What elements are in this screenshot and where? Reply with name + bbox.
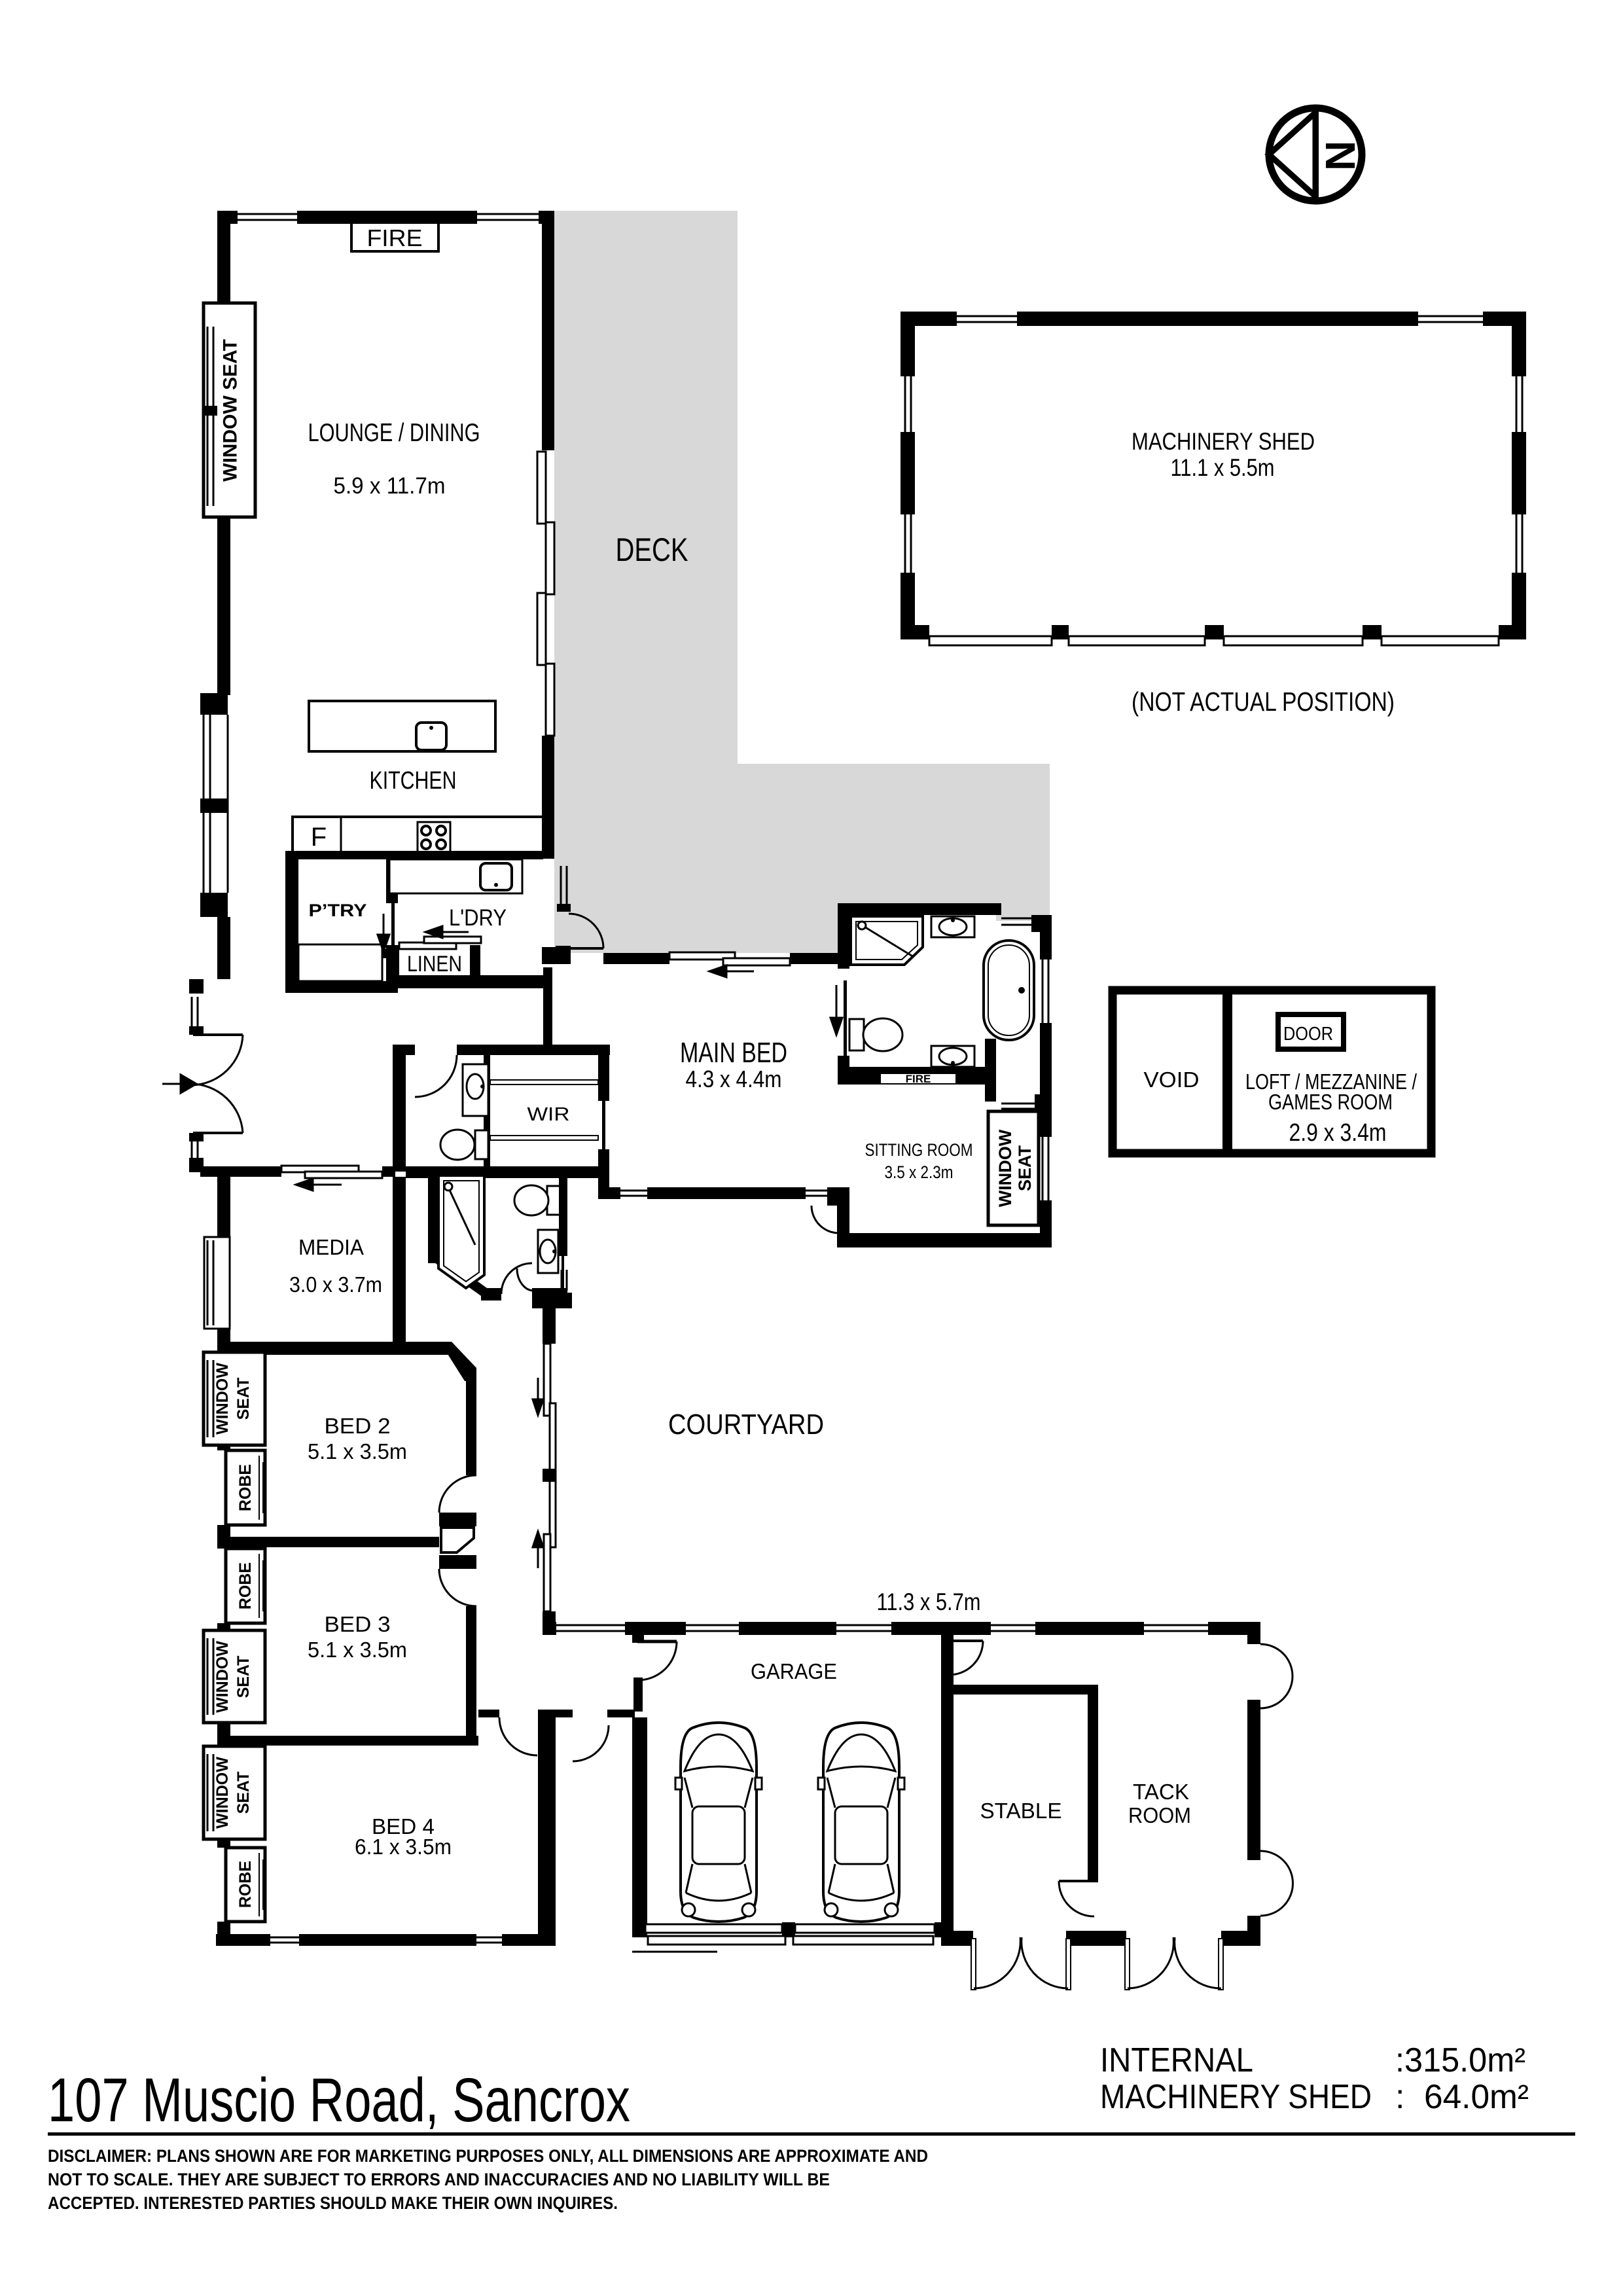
svg-text:SITTING ROOM: SITTING ROOM <box>865 1140 973 1160</box>
svg-text:NOT TO SCALE. THEY ARE SUBJE: NOT TO SCALE. THEY ARE SUBJECT TO ERRORS… <box>48 2170 830 2189</box>
svg-text:2.9 x 3.4m: 2.9 x 3.4m <box>1289 1119 1387 1147</box>
svg-text:3.5 x 2.3m: 3.5 x 2.3m <box>885 1162 954 1182</box>
svg-text:WINDOW: WINDOW <box>213 1757 232 1829</box>
svg-text:64.0m²: 64.0m² <box>1424 2078 1529 2116</box>
svg-text:WIR: WIR <box>527 1104 570 1125</box>
svg-text:WINDOW SEAT: WINDOW SEAT <box>220 339 241 482</box>
svg-text:5.1 x 3.5m: 5.1 x 3.5m <box>308 1638 407 1662</box>
svg-text:BED 2: BED 2 <box>325 1414 391 1438</box>
svg-text:MEDIA: MEDIA <box>298 1235 364 1259</box>
svg-text::: : <box>1395 2078 1404 2116</box>
svg-text:SEAT: SEAT <box>234 1772 253 1814</box>
svg-text:GAMES ROOM: GAMES ROOM <box>1268 1090 1393 1114</box>
svg-text:WINDOW: WINDOW <box>995 1129 1015 1207</box>
svg-text:ROBE: ROBE <box>236 1464 255 1511</box>
svg-text:ROBE: ROBE <box>236 1861 255 1908</box>
svg-text:WINDOW: WINDOW <box>213 1363 232 1435</box>
svg-text:MAIN BED: MAIN BED <box>680 1037 787 1069</box>
svg-text:(NOT ACTUAL POSITION): (NOT ACTUAL POSITION) <box>1132 687 1395 717</box>
svg-text:INTERNAL: INTERNAL <box>1100 2041 1253 2079</box>
svg-text:DOOR: DOOR <box>1283 1024 1333 1045</box>
svg-text:FIRE: FIRE <box>367 224 423 251</box>
svg-text:3.0 x 3.7m: 3.0 x 3.7m <box>289 1272 382 1297</box>
svg-text:LOUNGE / DINING: LOUNGE / DINING <box>308 419 480 447</box>
svg-text:11.3 x 5.7m: 11.3 x 5.7m <box>877 1588 981 1615</box>
svg-text:107 Muscio Road, Sancrox: 107 Muscio Road, Sancrox <box>48 2066 630 2135</box>
svg-text:P’TRY: P’TRY <box>309 901 367 920</box>
svg-text:SEAT: SEAT <box>234 1378 253 1420</box>
svg-text:GARAGE: GARAGE <box>751 1659 837 1683</box>
svg-text:ROBE: ROBE <box>236 1562 255 1609</box>
svg-text:6.1 x 3.5m: 6.1 x 3.5m <box>355 1835 452 1859</box>
svg-text:STABLE: STABLE <box>980 1799 1062 1823</box>
svg-text:SEAT: SEAT <box>234 1656 253 1698</box>
svg-text:N: N <box>1317 141 1364 171</box>
svg-text:F: F <box>311 823 327 852</box>
svg-text:ROOM: ROOM <box>1128 1803 1191 1827</box>
svg-text:11.1 x 5.5m: 11.1 x 5.5m <box>1171 454 1275 481</box>
svg-text:COURTYARD: COURTYARD <box>668 1408 824 1441</box>
svg-text:MACHINERY SHED: MACHINERY SHED <box>1132 428 1315 455</box>
svg-text:DISCLAIMER: PLANS SHOWN ARE FO: DISCLAIMER: PLANS SHOWN ARE FOR MARKETIN… <box>48 2146 928 2166</box>
svg-text:FIRE: FIRE <box>906 1073 931 1085</box>
svg-text:KITCHEN: KITCHEN <box>370 767 457 795</box>
svg-text:ACCEPTED. INTERESTED PARTIES S: ACCEPTED. INTERESTED PARTIES SHOULD MAKE… <box>48 2193 618 2213</box>
svg-text:5.9 x 11.7m: 5.9 x 11.7m <box>334 473 446 499</box>
svg-text:4.3 x 4.4m: 4.3 x 4.4m <box>686 1066 782 1092</box>
svg-text:BED 3: BED 3 <box>325 1612 391 1636</box>
svg-text:LINEN: LINEN <box>407 952 462 977</box>
svg-text:L'DRY: L'DRY <box>449 905 507 931</box>
svg-text:SEAT: SEAT <box>1015 1145 1035 1191</box>
svg-text:TACK: TACK <box>1133 1780 1189 1804</box>
svg-text:5.1 x 3.5m: 5.1 x 3.5m <box>308 1439 407 1463</box>
svg-text::315.0m²: :315.0m² <box>1395 2041 1525 2079</box>
svg-text:VOID: VOID <box>1144 1067 1200 1092</box>
svg-text:WINDOW: WINDOW <box>213 1641 232 1713</box>
svg-text:DECK: DECK <box>616 531 688 568</box>
svg-text:MACHINERY SHED: MACHINERY SHED <box>1100 2078 1372 2116</box>
